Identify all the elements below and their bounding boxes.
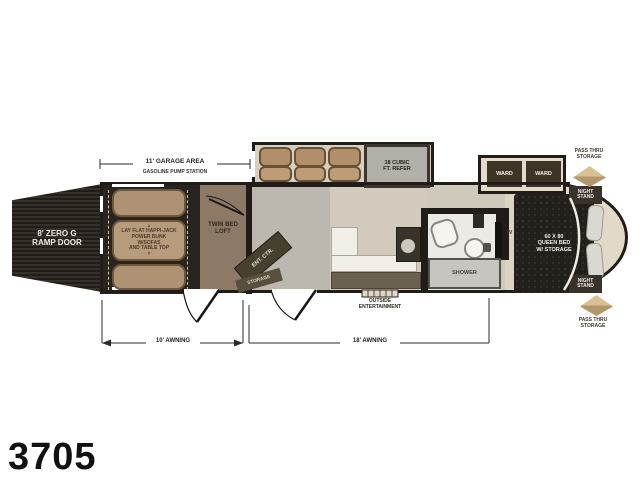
pass-thru-bottom-label: PASS THRU STORAGE: [563, 318, 623, 330]
floorplan-canvas: 8' ZERO G RAMP DOOR ▲ LAY FLAT HAPPI-JAC…: [0, 0, 640, 480]
refrigerator-label: 18 CUBIC FT. REFER: [383, 160, 411, 173]
pass-thru-arrow-icon: [580, 295, 613, 316]
loft-label: TWIN BED LOFT: [201, 222, 245, 236]
queen-bed-label: 60 X 80 QUEEN BED W/ STORAGE: [536, 234, 571, 253]
pass-thru-top-label: PASS THRU STORAGE: [559, 149, 619, 161]
sofa-back-cushions: [259, 147, 361, 167]
tv-label: TV: [506, 231, 520, 237]
sofa-cushion: [294, 166, 327, 182]
shower-label: SHOWER: [452, 270, 477, 276]
bathroom-wall-left: [421, 208, 428, 291]
sofa-cushion: [259, 166, 292, 182]
ramp-door: 8' ZERO G RAMP DOOR: [12, 184, 102, 292]
ramp-door-label: 8' ZERO G RAMP DOOR: [32, 229, 82, 247]
sofa-seat-cushions: [259, 166, 361, 182]
pillow: [585, 204, 604, 241]
bathroom-sink: [464, 238, 485, 259]
wardrobe-left: WARD: [487, 161, 522, 187]
bathroom-wall-top: [421, 208, 508, 214]
twin-bed-loft: [200, 185, 246, 292]
awning-left-label: 10' AWNING: [146, 338, 200, 345]
garage-window: [100, 238, 103, 254]
entry-door-opening: [272, 289, 317, 294]
night-stand-label: NIGHT STAND: [577, 279, 594, 290]
tv: [495, 222, 502, 258]
kitchen-cabinets: [331, 272, 421, 289]
arrow-left-icon: [102, 340, 111, 347]
outside-entertainment-unit: [362, 290, 398, 297]
power-bunk-label: LAY FLAT HAPPI-JACK POWER BUNK W/SOFAS A…: [121, 229, 176, 252]
bathroom-cabinet: [473, 214, 484, 228]
wardrobe-right: WARD: [526, 161, 561, 187]
garage-window: [100, 196, 103, 212]
night-stand-label: NIGHT STAND: [577, 190, 594, 201]
pump-station-label: GASOLINE PUMP STATION: [120, 170, 230, 176]
night-stand-bottom: NIGHT STAND: [569, 275, 602, 293]
shower: SHOWER: [428, 258, 501, 289]
storage-label: STORAGE: [247, 275, 271, 286]
down-arrow-icon: ▼: [147, 252, 152, 257]
sofa-cushion: [328, 147, 361, 167]
arrow-right-icon: [234, 340, 243, 347]
night-stand-top: NIGHT STAND: [569, 186, 602, 204]
bunk-track-right: [187, 190, 188, 290]
model-number: 3705: [8, 436, 97, 479]
bunk-track-left: [108, 190, 109, 290]
garage-window: [112, 184, 164, 187]
outside-entertainment-vents: [368, 290, 392, 297]
garage-sofa-top: [112, 189, 186, 217]
refrigerator: 18 CUBIC FT. REFER: [364, 144, 430, 188]
power-bunk: ▲ LAY FLAT HAPPI-JACK POWER BUNK W/SOFAS…: [112, 220, 186, 261]
sofa-cushion: [259, 147, 292, 167]
slideout-window: [252, 151, 255, 177]
outside-entertainment-label: OUTSIDE ENTERTAINMENT: [343, 299, 417, 311]
stove-burner: [401, 239, 415, 253]
garage-dimension-label: 11' GARAGE AREA: [133, 158, 217, 165]
wardrobe-label: WARD: [535, 171, 552, 177]
pass-thru-arrow-icon: [573, 166, 606, 187]
sofa-cushion: [294, 147, 327, 167]
sink-faucet: [483, 243, 491, 252]
entry-door-swing: [271, 290, 295, 320]
sofa-cushion: [328, 166, 361, 182]
garage-sofa-bottom: [112, 264, 186, 290]
awning-left-line: [102, 300, 243, 343]
awning-right-label: 18' AWNING: [340, 338, 400, 345]
wardrobe-label: WARD: [496, 171, 513, 177]
entry-door-panel: [197, 290, 219, 322]
entry-door-panel: [295, 290, 316, 320]
entry-door-swing: [183, 290, 197, 322]
entry-door-opening: [184, 289, 218, 294]
